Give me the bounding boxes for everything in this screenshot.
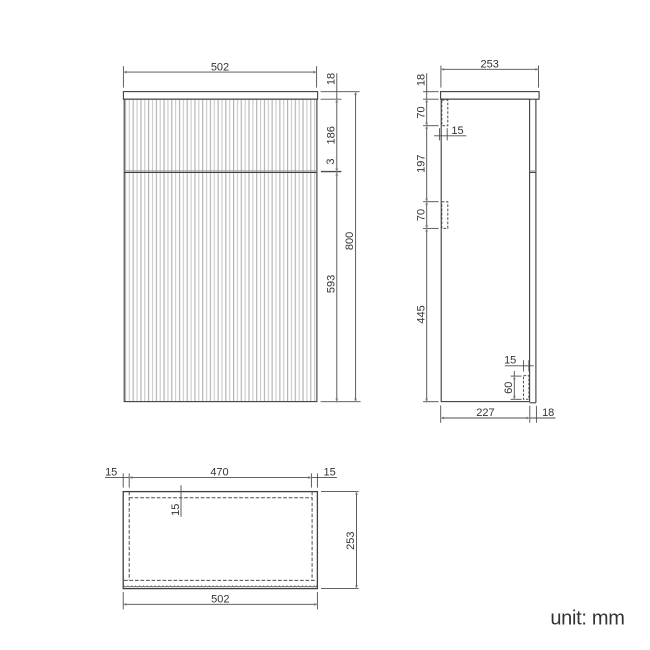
svg-text:18: 18 xyxy=(542,407,554,419)
svg-text:3: 3 xyxy=(325,158,337,164)
svg-text:227: 227 xyxy=(476,407,494,419)
svg-text:15: 15 xyxy=(451,125,463,137)
svg-text:197: 197 xyxy=(415,155,427,173)
svg-text:70: 70 xyxy=(415,106,427,118)
svg-text:18: 18 xyxy=(325,73,337,85)
svg-text:15: 15 xyxy=(504,355,516,367)
svg-text:15: 15 xyxy=(323,467,335,479)
svg-text:15: 15 xyxy=(105,467,117,479)
svg-text:18: 18 xyxy=(415,74,427,86)
svg-text:70: 70 xyxy=(415,209,427,221)
svg-text:502: 502 xyxy=(211,593,229,605)
svg-text:502: 502 xyxy=(211,61,229,73)
svg-text:253: 253 xyxy=(481,59,499,71)
svg-text:593: 593 xyxy=(325,275,337,293)
svg-text:60: 60 xyxy=(503,382,515,394)
svg-text:253: 253 xyxy=(345,532,357,550)
svg-text:445: 445 xyxy=(415,305,427,323)
svg-text:15: 15 xyxy=(170,504,182,516)
svg-text:186: 186 xyxy=(325,126,337,144)
svg-text:800: 800 xyxy=(344,232,356,250)
svg-text:470: 470 xyxy=(210,467,228,479)
svg-text:unit: mm: unit: mm xyxy=(550,608,624,630)
